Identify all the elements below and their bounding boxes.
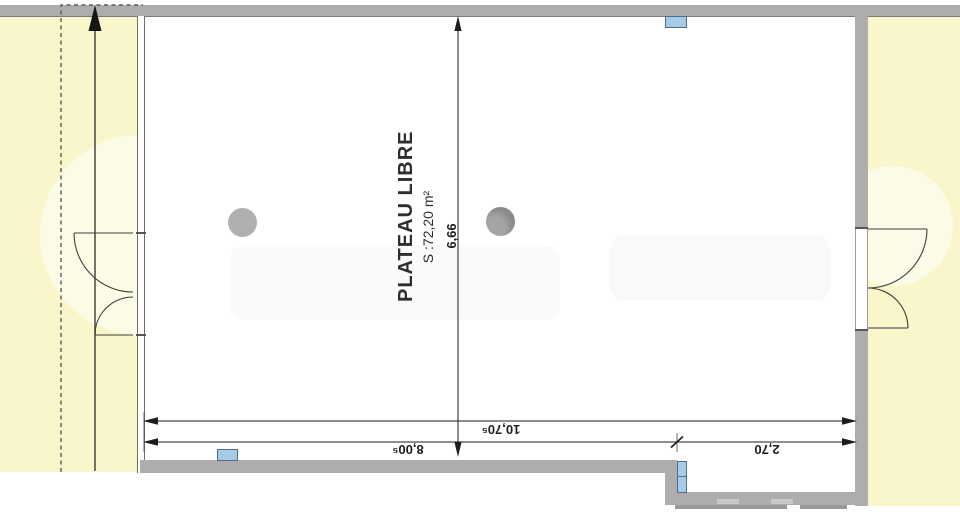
boundary-dashed-line	[61, 5, 143, 472]
dim-alcove-label: 2,70	[737, 441, 797, 457]
floor-plan: PLATEAU LIBRE S :72,20 m² 6,66 10,70⁵ 8,…	[0, 0, 960, 515]
double-door-left	[74, 233, 133, 335]
plan-linework	[0, 0, 960, 515]
dim-main-label: 8,00⁵	[378, 441, 438, 457]
double-door-right	[868, 229, 927, 328]
entrance-arrow	[89, 5, 102, 471]
room-area-label: S :72,20 m²	[420, 172, 438, 282]
room-name-label: PLATEAU LIBRE	[395, 152, 417, 302]
dim-height-label: 6,66	[444, 216, 460, 256]
dim-total-label: 10,70⁵	[471, 421, 531, 437]
